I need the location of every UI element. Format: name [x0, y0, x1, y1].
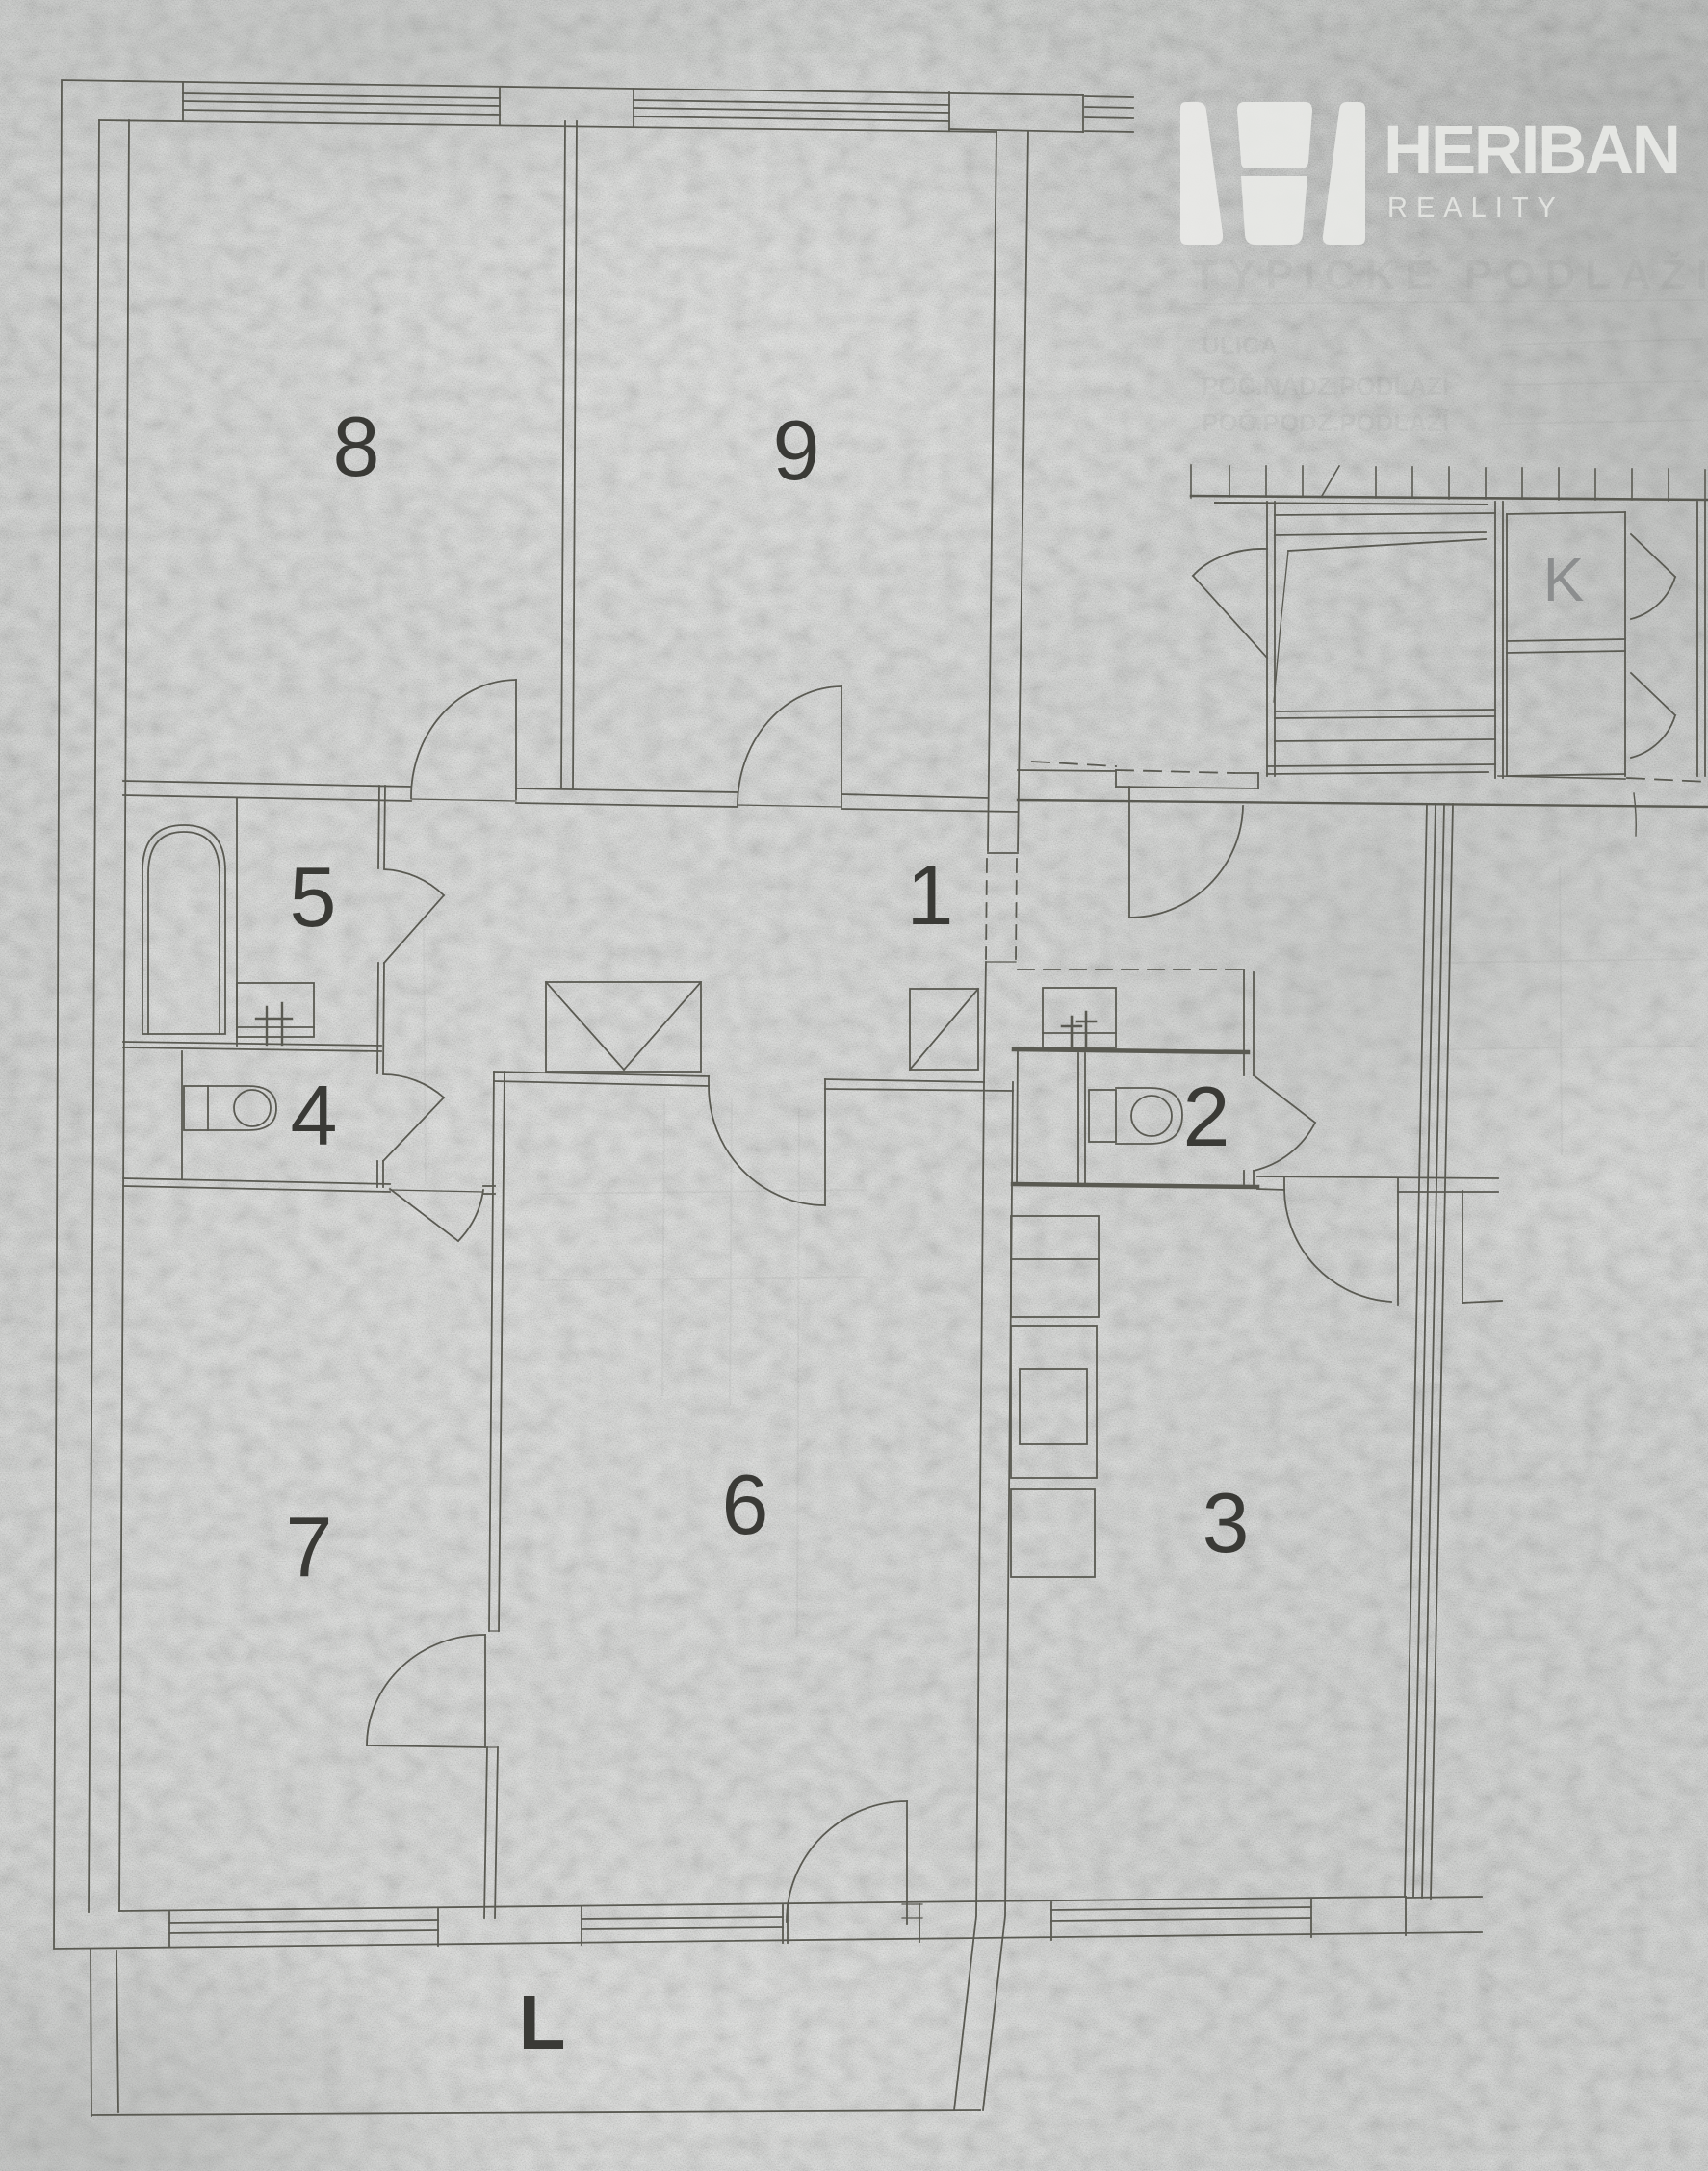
svg-text:ULICA: ULICA: [1202, 331, 1279, 360]
svg-text:POČ.NADZ.PODLAŽÍ: POČ.NADZ.PODLAŽÍ: [1202, 372, 1450, 401]
svg-text:TYPICKÉ PODLAŽIE: TYPICKÉ PODLAŽIE: [1192, 250, 1708, 298]
svg-text:3: 3: [1203, 1475, 1250, 1570]
svg-text:POČ.PODZ.PODLAŽÍ: POČ.PODZ.PODLAŽÍ: [1202, 408, 1450, 437]
svg-text:4: 4: [291, 1068, 338, 1163]
svg-text:9: 9: [773, 402, 820, 498]
svg-text:5: 5: [290, 849, 337, 944]
svg-text:8: 8: [333, 399, 380, 494]
svg-text:L: L: [519, 1979, 566, 2065]
svg-text:1: 1: [907, 847, 954, 943]
svg-text:6: 6: [722, 1457, 769, 1552]
svg-text:HERIBAN: HERIBAN: [1384, 113, 1682, 189]
svg-text:7: 7: [286, 1499, 333, 1594]
svg-text:2: 2: [1183, 1069, 1230, 1164]
svg-text:REALITY: REALITY: [1387, 193, 1565, 223]
svg-text:K: K: [1543, 545, 1585, 614]
